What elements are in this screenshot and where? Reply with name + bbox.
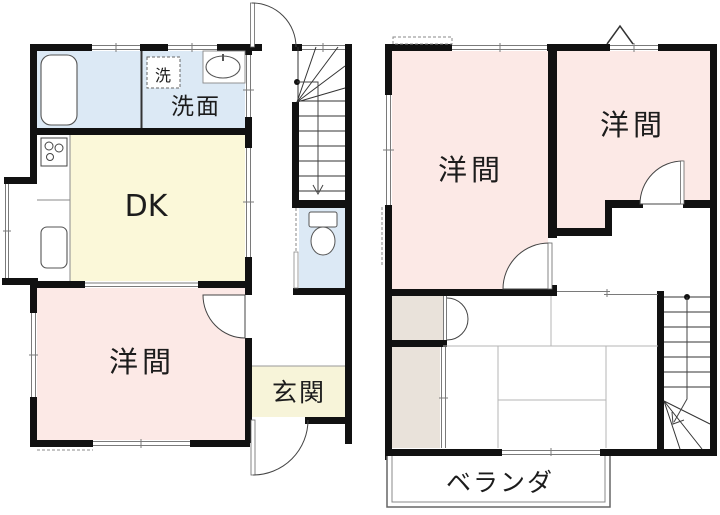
floor2-plan: ベランダ 洋間 洋間 <box>382 26 717 507</box>
western-room-2f-left-label: 洋間 <box>438 153 504 187</box>
wall-segment <box>140 44 168 51</box>
window <box>502 448 600 457</box>
kitchen-bay <box>9 184 37 278</box>
eaves-dash-rect <box>393 37 452 44</box>
wall-segment <box>345 44 352 444</box>
wall-segment <box>385 340 447 347</box>
washer-label: 洗 <box>155 66 171 85</box>
wall-segment <box>4 177 37 184</box>
dk-room-sliding-door <box>85 283 198 287</box>
wall-segment <box>293 288 352 295</box>
wall-segment <box>245 117 252 148</box>
wall-segment <box>657 291 664 449</box>
window <box>452 43 547 52</box>
closet-upper-front <box>444 296 447 340</box>
window <box>610 43 658 52</box>
kitchen-sink <box>41 227 67 268</box>
entrance-top-door <box>251 3 297 47</box>
wall-segment <box>548 228 612 236</box>
wall-segment <box>30 44 37 177</box>
wall-segment <box>385 44 452 51</box>
washbasin <box>203 51 245 83</box>
wall-segment <box>548 44 557 238</box>
wall-segment <box>245 257 252 295</box>
stairs-1f <box>294 47 345 194</box>
entrance-label: 玄関 <box>272 378 326 407</box>
wall-segment <box>385 289 548 296</box>
wall-segment <box>385 449 502 456</box>
wall-segment <box>292 102 299 200</box>
veranda-label: ベランダ <box>446 468 554 497</box>
wall-segment <box>30 281 85 288</box>
floor1-plan: 洗 洗面 DK 洋間 玄関 <box>2 3 352 475</box>
washroom-label: 洗面 <box>171 94 221 120</box>
tatami-mat-lines <box>443 296 658 448</box>
stove-icon <box>41 138 67 166</box>
window <box>92 43 140 52</box>
stair-guide-line <box>674 297 687 422</box>
wall-segment <box>37 128 245 135</box>
wall-segment <box>305 417 352 424</box>
floor-plan-page: 洗 洗面 DK 洋間 玄関 <box>0 0 720 515</box>
roof-vent-triangle-icon <box>607 26 633 44</box>
closet-double-doors <box>447 298 468 340</box>
wall-segment <box>612 200 643 208</box>
wall-segment <box>198 281 252 288</box>
veranda: ベランダ <box>387 456 610 507</box>
bathtub <box>41 55 77 125</box>
closet-upper <box>392 296 443 340</box>
tatami-sliding-doors <box>557 289 658 297</box>
toilet-door <box>294 208 298 288</box>
stairs-2f <box>664 294 710 449</box>
front-door <box>251 420 308 475</box>
wall-segment <box>292 200 352 208</box>
window <box>29 313 38 397</box>
floor-plan-drawing: 洗 洗面 DK 洋間 玄関 <box>0 0 720 515</box>
closet-lower-front <box>439 347 448 448</box>
wall-segment <box>292 44 302 51</box>
window <box>302 43 345 52</box>
dk-label: DK <box>125 189 169 224</box>
toilet-icon <box>309 212 337 255</box>
wall-segment <box>217 44 262 51</box>
western-room-2f-right-label: 洋間 <box>600 108 666 142</box>
western-room-1f-label: 洋間 <box>109 345 175 379</box>
window <box>93 439 190 448</box>
wall-segment <box>30 44 92 51</box>
wall-segment <box>683 200 717 208</box>
closet-lower <box>392 347 440 448</box>
wall-segment <box>710 44 717 455</box>
wall-segment <box>658 44 717 51</box>
wall-segment <box>600 449 717 456</box>
